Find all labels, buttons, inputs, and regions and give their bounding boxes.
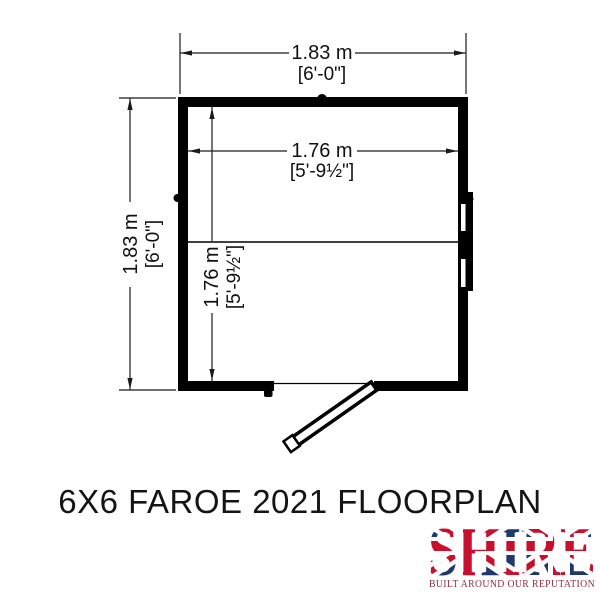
overall-width-imperial-label: [6'-0"] <box>298 64 346 85</box>
arrowhead-left <box>181 50 193 55</box>
arrowhead-left <box>189 148 201 153</box>
internal-depth-imperial-label: [5'-9½"] <box>224 245 245 309</box>
door-leaf-group <box>283 381 377 452</box>
shire-logo: SHIRE BUILT AROUND OUR REPUTATION <box>424 516 600 594</box>
window-pane-top <box>461 204 466 231</box>
overall-depth-imperial-label: [6'-0"] <box>143 220 164 268</box>
wall-left <box>178 97 188 391</box>
internal-width-imperial-label: [5'-9½"] <box>290 161 354 182</box>
wall-bottom-right-segment <box>374 381 468 391</box>
window-pane-bottom <box>461 259 466 287</box>
arrowhead-right <box>454 50 466 55</box>
arrowhead-top <box>127 99 132 111</box>
door <box>264 381 378 452</box>
wall-bottom-left-segment <box>178 381 274 391</box>
door-leaf <box>292 382 376 445</box>
arrowhead-bottom <box>127 378 132 390</box>
arrowhead-top <box>209 108 214 120</box>
arrowhead-bottom <box>209 369 214 381</box>
floorplan-page: 1.83 m [6'-0"] 1.83 m [6'-0"] 1.76 m [5'… <box>0 0 600 600</box>
internal-width-metric-label: 1.76 m <box>291 140 352 162</box>
logo-tagline: BUILT AROUND OUR REPUTATION <box>429 579 595 590</box>
door-stop <box>264 390 273 397</box>
internal-depth-metric-label: 1.76 m <box>201 246 223 307</box>
vent-dot-right-wall <box>468 196 474 202</box>
dimension-internal-depth <box>209 107 214 381</box>
arrowhead-right <box>446 148 458 153</box>
vent-dot-left-wall <box>174 194 182 202</box>
vent-dot-top-wall <box>317 94 327 104</box>
overall-depth-metric-label: 1.83 m <box>120 213 142 274</box>
window-right-wall <box>458 192 473 291</box>
overall-width-metric-label: 1.83 m <box>291 42 352 64</box>
